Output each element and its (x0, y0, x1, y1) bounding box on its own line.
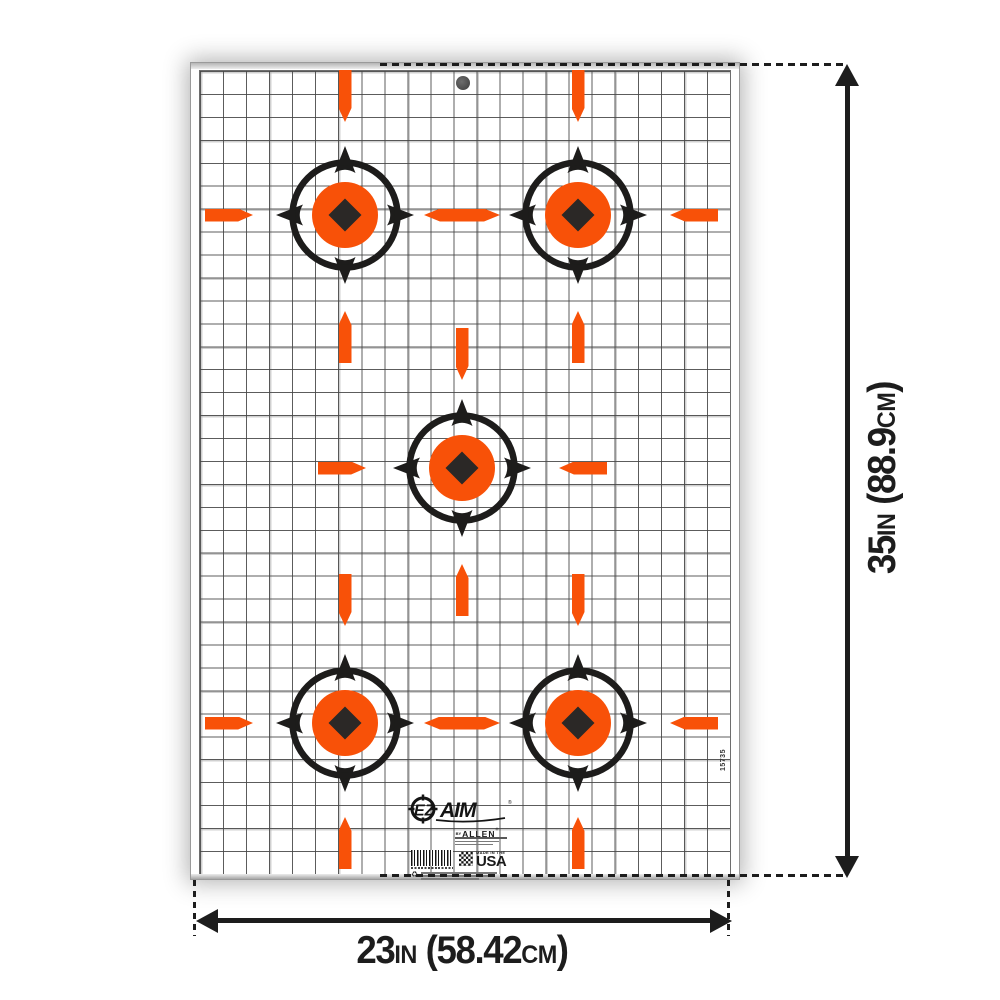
unit-text: IN (873, 514, 901, 537)
value-text: ( (417, 929, 437, 972)
value-text: ( (861, 494, 904, 514)
bullseye-target (382, 388, 542, 548)
bullseye-target (265, 135, 425, 295)
arrow-up-icon (835, 64, 859, 86)
width-dimension-label: 23IN (58.42CM) (321, 928, 603, 974)
by-text: BY (456, 831, 462, 836)
made-in-usa: MADE IN THE USA (476, 850, 522, 868)
barcode-digits (411, 867, 453, 869)
micro-text-line (455, 837, 507, 839)
height-dimension-line (845, 84, 850, 858)
bullseye-icon (498, 135, 658, 295)
logo-ez-text: EZ (414, 803, 436, 820)
sku-code: 15735 (720, 721, 730, 771)
hang-hole (456, 76, 470, 90)
value-text: 35 (861, 536, 904, 574)
micro-text-line (421, 878, 479, 880)
qr-code (459, 852, 473, 866)
arrow-left-icon (196, 909, 218, 933)
bullseye-target (498, 643, 658, 803)
width-dimension-line (214, 918, 712, 923)
unit-text: CM (521, 941, 557, 969)
product-image: EZ AIM ® BYALLEN® MADE IN THE USA ♻ (0, 0, 1000, 1000)
tick-mark (424, 717, 500, 730)
arrow-down-icon (835, 856, 859, 878)
micro-text-line (455, 844, 493, 846)
value-text: 58.42 (436, 929, 521, 972)
barcode (411, 850, 453, 866)
unit-text: CM (873, 393, 901, 429)
logo-aim-text: AIM (439, 799, 477, 822)
value-text: ) (557, 929, 568, 972)
tick-mark (424, 209, 500, 222)
allen-reg-mark: ® (495, 827, 498, 832)
usa-text: USA (476, 855, 522, 868)
extension-line-top (380, 63, 844, 66)
value-text: 23 (356, 929, 394, 972)
bullseye-icon (382, 388, 542, 548)
bullseye-target (498, 135, 658, 295)
arrow-right-icon (710, 909, 732, 933)
product-description-micro-text (455, 837, 509, 847)
unit-text: IN (394, 941, 417, 969)
micro-text-line (455, 841, 499, 843)
extension-line-bottom (380, 874, 844, 877)
value-text: 88.9 (861, 428, 904, 494)
bullseye-icon (265, 643, 425, 803)
bullseye-icon (265, 135, 425, 295)
brand-block: EZ AIM ® BYALLEN® MADE IN THE USA ♻ (403, 794, 527, 878)
bullseye-icon (498, 643, 658, 803)
value-text: ) (861, 382, 904, 393)
height-dimension-label: 35IN (88.9CM) (860, 337, 906, 619)
bullseye-target (265, 643, 425, 803)
